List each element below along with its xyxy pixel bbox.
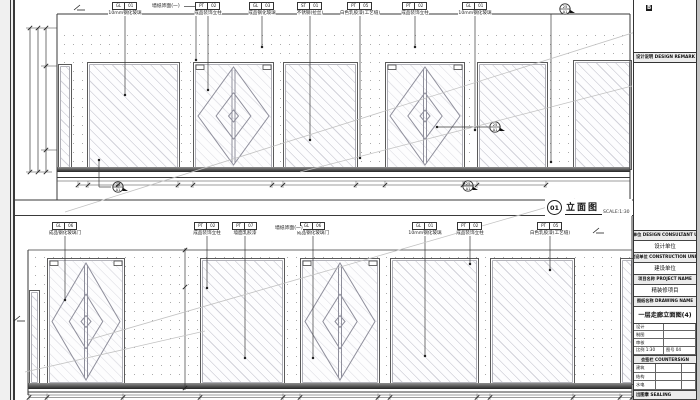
tag-code-boxes: GL 01	[113, 2, 137, 10]
tag-label: 不锈钢(拉丝)	[297, 11, 324, 16]
tag-code-left: GL	[112, 2, 125, 10]
tag-code-right: 02	[206, 222, 219, 230]
tag-code-right: 02	[469, 222, 482, 230]
tag-code-left: PT	[537, 222, 550, 230]
drawing-title-text: 立面图	[565, 200, 602, 215]
glass-door-top-2	[193, 62, 274, 170]
tag-code-left: PT	[347, 2, 360, 10]
material-tag-top-0: GL 01 10mm钢化玻璃	[105, 2, 145, 16]
tag-code-boxes: PT 07	[233, 222, 257, 230]
info-cell-0-1	[664, 324, 696, 332]
drawing-title: 01 立面图 SCALE:1:30	[545, 199, 632, 216]
material-tag-bottom-0: GL 06 成品钢化玻璃门	[45, 222, 85, 236]
tag-code-boxes: GL 01	[463, 2, 487, 10]
countersign-header: 会签栏 COUNTERSIGN	[634, 356, 696, 365]
tag-label: 10mm钢化玻璃	[458, 11, 491, 16]
countersign-cell-2-1	[656, 381, 682, 390]
material-tag-bottom-1: PT 02 成品装饰立柱	[187, 222, 227, 236]
tag-code-right: 07	[244, 222, 257, 230]
drawing-number-bubble: 01	[547, 200, 562, 215]
title-block: B 设计说明 DESIGN REMARK 设计单位 DESIGN CONSULT…	[633, 0, 697, 400]
countersign-cell-1-2	[682, 373, 696, 382]
tag-code-boxes: GL 03	[250, 2, 274, 10]
tag-code-left: PT	[194, 222, 207, 230]
tag-code-boxes: GL 06	[53, 222, 77, 230]
material-tag-bottom-5: PT 02 成品装饰立柱	[450, 222, 490, 236]
door-leaf-pattern	[386, 63, 464, 169]
tag-code-left: PT	[232, 222, 245, 230]
tag-code-boxes: ST 01	[298, 2, 322, 10]
tag-code-right: 01	[474, 2, 487, 10]
tag-label: 成品钢化玻璃门	[297, 231, 329, 236]
remark-body	[634, 63, 696, 231]
info-cell-3-1: 图号 04	[664, 347, 696, 355]
countersign-cell-0-0: 建筑	[634, 364, 656, 373]
sheet-border-outer	[10, 0, 11, 400]
glass-door-bottom-3	[300, 258, 380, 385]
tag-code-right: 06	[64, 222, 77, 230]
countersign-cell-1-0: 结构	[634, 373, 656, 382]
material-tag-top-3: ST 01 不锈钢(拉丝)	[290, 2, 330, 16]
tag-code-left: GL	[462, 2, 475, 10]
tag-code-boxes: PT 05	[538, 222, 562, 230]
tb-row-value-0: 设计单位	[634, 241, 696, 253]
door-leaf-pattern	[194, 63, 273, 169]
material-tag-bottom-2: PT 07 墙面乳胶漆	[225, 222, 265, 236]
tag-code-boxes: PT 02	[403, 2, 427, 10]
drawing-name-cell: 一层走廊立面图(4)	[634, 307, 696, 324]
tag-label: 10mm钢化玻璃	[108, 11, 141, 16]
glass-hatch	[61, 67, 69, 167]
baseboard-bottom	[28, 383, 632, 389]
sheet-border-inner	[13, 0, 15, 400]
glass-hatch	[576, 63, 629, 167]
tag-code-right: 05	[359, 2, 372, 10]
glass-panel-top-6	[573, 60, 632, 170]
countersign-cell-2-0: 水电	[634, 381, 656, 390]
countersign-cell-1-1	[656, 373, 682, 382]
glass-panel-bottom-5	[490, 258, 575, 385]
glass-panel-top-3	[283, 62, 358, 170]
tag-code-boxes: PT 02	[458, 222, 482, 230]
info-cell-1-1	[664, 331, 696, 339]
info-cell-3-0: 比例 1:30	[634, 347, 664, 355]
tag-code-right: 01	[424, 222, 437, 230]
countersign-cell-2-2	[682, 381, 696, 390]
tb-row-value-2: 精装修项目	[634, 285, 696, 297]
tag-code-boxes: PT 02	[196, 2, 220, 10]
tag-code-boxes: PT 02	[195, 222, 219, 230]
material-tag-top-1: PT 02 成品装饰立柱	[188, 2, 228, 16]
tag-code-right: 01	[124, 2, 137, 10]
glass-panel-top-5	[477, 62, 548, 170]
glass-panel-bottom-0	[29, 290, 40, 385]
tag-label: 成品装饰立柱	[401, 11, 429, 16]
tag-code-left: GL	[52, 222, 65, 230]
tb-row-label-1: 建设单位 CONSTRUCTION UNIT	[634, 253, 696, 263]
glass-door-top-4	[385, 62, 465, 170]
tag-label: 成品装饰立柱	[456, 231, 484, 236]
sheet-mark: B	[646, 5, 652, 11]
glass-panel-bottom-2	[200, 258, 285, 385]
sealing-cell: 出图章 SEALING	[634, 391, 696, 400]
tb-row-label-0: 设计单位 DESIGN CONSULTANT UNIT	[634, 231, 696, 241]
material-tag-top-4: PT 05 白色乳胶漆(工艺缝)	[340, 2, 380, 16]
door-leaf-pattern	[301, 259, 379, 384]
glass-hatch	[286, 65, 355, 167]
info-table: 设计制图审核比例 1:30图号 04	[634, 324, 696, 356]
tag-label: 成品装饰立柱	[194, 11, 222, 16]
text-callout-bottom-0: 墙纸饰面(一)	[275, 226, 303, 231]
tag-code-left: GL	[249, 2, 262, 10]
glass-hatch	[623, 261, 631, 382]
glass-panel-bottom-6	[620, 258, 634, 385]
tb-row-label-3: 图纸名称 DRAWING NAME	[634, 297, 696, 307]
info-cell-1-0: 制图	[634, 331, 664, 339]
tag-code-left: ST	[297, 2, 310, 10]
tag-code-left: PT	[195, 2, 208, 10]
tb-row-value-1: 建设单位	[634, 263, 696, 275]
tag-label: 白色乳胶漆(工艺缝)	[340, 11, 380, 16]
glass-hatch	[203, 261, 282, 382]
tag-label: 成品装饰立柱	[193, 231, 221, 236]
tag-code-boxes: GL 06	[301, 222, 325, 230]
tag-label: 成品钢化玻璃	[248, 11, 276, 16]
countersign-cell-0-1	[656, 364, 682, 373]
glass-hatch	[393, 261, 476, 382]
glass-hatch	[90, 65, 177, 167]
tag-label: 成品钢化玻璃门	[49, 231, 81, 236]
cad-sheet-viewport: GL 01 10mm钢化玻璃 PT 02 成品装饰立柱 GL 03 成品钢化玻璃…	[0, 0, 700, 400]
tag-code-left: PT	[457, 222, 470, 230]
baseboard-top	[57, 167, 630, 172]
tb-row-label-2: 项目名称 PROJECT NAME	[634, 275, 696, 285]
tag-code-boxes: PT 05	[348, 2, 372, 10]
tag-code-right: 02	[414, 2, 427, 10]
glass-panel-top-0	[58, 64, 72, 170]
info-cell-2-1	[664, 339, 696, 347]
text-callout-top-0: 墙纸饰面(一)	[152, 4, 180, 9]
remark-header: 设计说明 DESIGN REMARK	[634, 53, 696, 63]
tag-code-boxes: GL 01	[413, 222, 437, 230]
glass-hatch	[493, 261, 572, 382]
glass-door-bottom-1	[47, 258, 125, 385]
material-tag-bottom-4: GL 01 10mm钢化玻璃	[405, 222, 445, 236]
tag-code-left: PT	[402, 2, 415, 10]
glass-panel-top-1	[87, 62, 180, 170]
title-block-top-cell: B	[634, 0, 696, 53]
material-tag-top-2: GL 03 成品钢化玻璃	[242, 2, 282, 16]
tag-code-left: GL	[412, 222, 425, 230]
countersign-grid: 建筑结构水电	[634, 364, 696, 391]
material-tag-top-6: GL 01 10mm钢化玻璃	[455, 2, 495, 16]
drawing-scale-text: SCALE:1:30	[603, 210, 630, 215]
info-cell-0-0: 设计	[634, 324, 664, 332]
tag-label: 10mm钢化玻璃	[408, 231, 441, 236]
tag-code-right: 01	[309, 2, 322, 10]
material-tag-top-5: PT 02 成品装饰立柱	[395, 2, 435, 16]
material-tag-bottom-6: PT 05 白色乳胶漆(工艺缝)	[530, 222, 570, 236]
tag-code-right: 02	[207, 2, 220, 10]
tag-code-right: 03	[261, 2, 274, 10]
countersign-cell-0-2	[682, 364, 696, 373]
tag-code-right: 05	[549, 222, 562, 230]
glass-hatch	[32, 293, 37, 382]
tag-label: 墙面乳胶漆	[234, 231, 257, 236]
tag-code-right: 06	[312, 222, 325, 230]
glass-hatch	[480, 65, 545, 167]
door-leaf-pattern	[48, 259, 124, 384]
info-cell-2-0: 审核	[634, 339, 664, 347]
tag-label: 白色乳胶漆(工艺缝)	[530, 231, 570, 236]
glass-panel-bottom-4	[390, 258, 479, 385]
